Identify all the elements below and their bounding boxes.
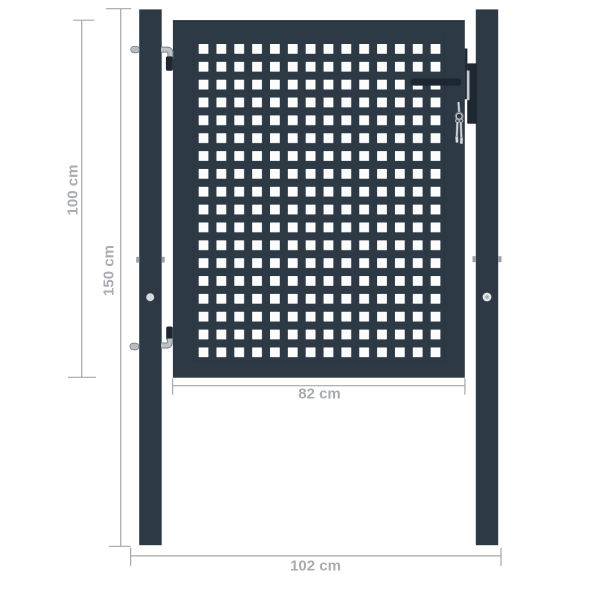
svg-text:102 cm: 102 cm	[290, 557, 341, 574]
svg-text:150 cm: 150 cm	[101, 245, 118, 296]
svg-text:100 cm: 100 cm	[65, 165, 82, 216]
svg-text:82 cm: 82 cm	[298, 386, 341, 403]
